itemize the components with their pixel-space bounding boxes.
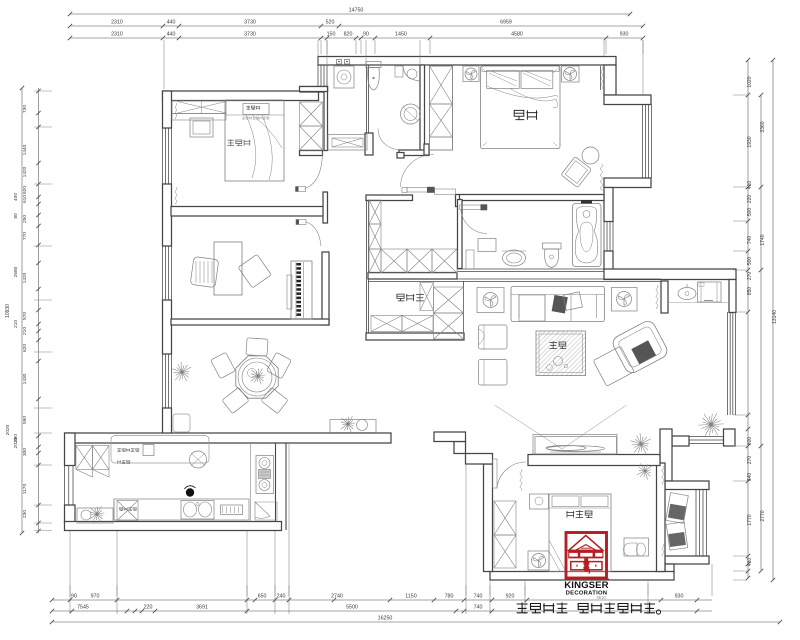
svg-text:1420: 1420: [22, 166, 28, 177]
svg-text:1430: 1430: [22, 373, 28, 384]
svg-text:500: 500: [747, 257, 753, 266]
svg-text:210: 210: [13, 320, 19, 328]
svg-text:930: 930: [675, 594, 684, 600]
svg-text:650: 650: [258, 594, 267, 600]
svg-text:1150: 1150: [405, 594, 416, 600]
svg-text:820: 820: [344, 32, 353, 38]
svg-text:210: 210: [22, 327, 28, 335]
svg-text:740: 740: [747, 236, 753, 245]
svg-text:1930: 1930: [747, 136, 753, 147]
svg-text:440: 440: [167, 20, 176, 26]
svg-text:1170: 1170: [22, 484, 28, 495]
svg-text:240: 240: [277, 594, 286, 600]
svg-text:10930: 10930: [5, 304, 11, 318]
svg-text:300: 300: [22, 448, 28, 456]
svg-text:570: 570: [22, 312, 28, 320]
svg-text:2310: 2310: [111, 32, 123, 38]
svg-text:770: 770: [22, 232, 28, 240]
svg-text:80: 80: [13, 213, 19, 219]
svg-text:230: 230: [22, 510, 28, 518]
svg-text:740: 740: [474, 594, 483, 600]
svg-text:3691: 3691: [196, 605, 208, 611]
svg-text:270: 270: [747, 272, 753, 281]
svg-text:2770: 2770: [760, 510, 766, 521]
svg-text:13140: 13140: [772, 310, 778, 324]
svg-text:14750: 14750: [349, 8, 364, 14]
svg-text:600: 600: [747, 437, 753, 446]
svg-text:520: 520: [326, 20, 335, 26]
svg-text:610: 610: [22, 195, 28, 203]
svg-text:1740: 1740: [760, 234, 766, 245]
svg-text:410: 410: [747, 558, 753, 567]
svg-text:3730: 3730: [244, 32, 256, 38]
svg-text:4580: 4580: [511, 32, 523, 38]
svg-text:KINGSER: KINGSER: [564, 580, 608, 591]
svg-text:2680: 2680: [13, 266, 19, 277]
svg-text:3730: 3730: [244, 20, 256, 26]
svg-text:250: 250: [22, 215, 28, 223]
svg-text:7545: 7545: [77, 605, 89, 611]
svg-text:220: 220: [144, 605, 153, 611]
svg-text:2020: 2020: [5, 424, 11, 435]
svg-text:270: 270: [747, 456, 753, 465]
svg-text:970: 970: [91, 594, 100, 600]
svg-text:640: 640: [747, 473, 753, 482]
svg-text:6959: 6959: [500, 20, 512, 26]
svg-text:930: 930: [620, 32, 629, 38]
svg-text:920: 920: [506, 594, 515, 600]
svg-text:1420: 1420: [22, 272, 28, 283]
svg-text:3510: 3510: [596, 595, 606, 600]
svg-text:850: 850: [747, 287, 753, 296]
svg-text:1770: 1770: [747, 514, 753, 525]
svg-text:1020: 1020: [747, 76, 753, 87]
svg-text:620: 620: [22, 344, 28, 352]
svg-text:2020: 2020: [13, 437, 19, 448]
svg-text:150: 150: [327, 32, 336, 38]
svg-text:1450: 1450: [395, 32, 407, 38]
svg-text:90: 90: [363, 32, 369, 38]
svg-text:740: 740: [474, 605, 483, 611]
svg-text:220: 220: [747, 195, 753, 204]
svg-text:2740: 2740: [331, 594, 343, 600]
svg-text:920: 920: [22, 186, 28, 194]
svg-text:410: 410: [747, 181, 753, 190]
svg-text:5500: 5500: [346, 605, 358, 611]
svg-text:2310: 2310: [111, 20, 123, 26]
svg-text:400: 400: [13, 193, 19, 201]
svg-text:780: 780: [445, 594, 454, 600]
svg-text:3360: 3360: [760, 121, 766, 132]
svg-text:16250: 16250: [378, 616, 393, 622]
svg-text:500: 500: [747, 208, 753, 217]
svg-text:730: 730: [22, 105, 28, 113]
svg-text:440: 440: [167, 32, 176, 38]
svg-text:1440: 1440: [22, 144, 28, 155]
svg-text:590: 590: [22, 416, 28, 424]
svg-text:90: 90: [71, 594, 77, 600]
